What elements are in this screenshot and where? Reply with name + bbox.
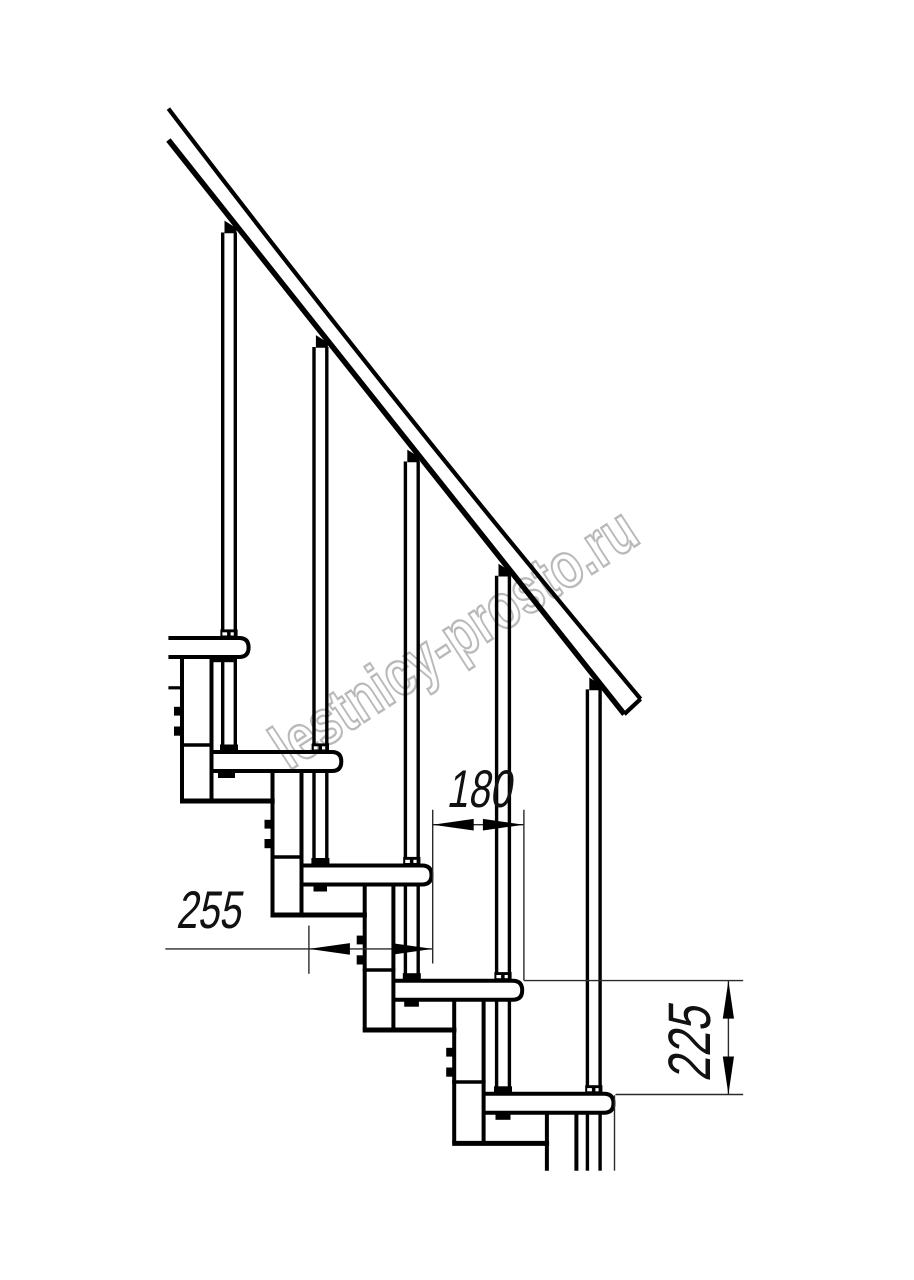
svg-text:255: 255 <box>174 881 249 940</box>
svg-text:225: 225 <box>656 997 723 1085</box>
svg-text:180: 180 <box>444 760 519 819</box>
